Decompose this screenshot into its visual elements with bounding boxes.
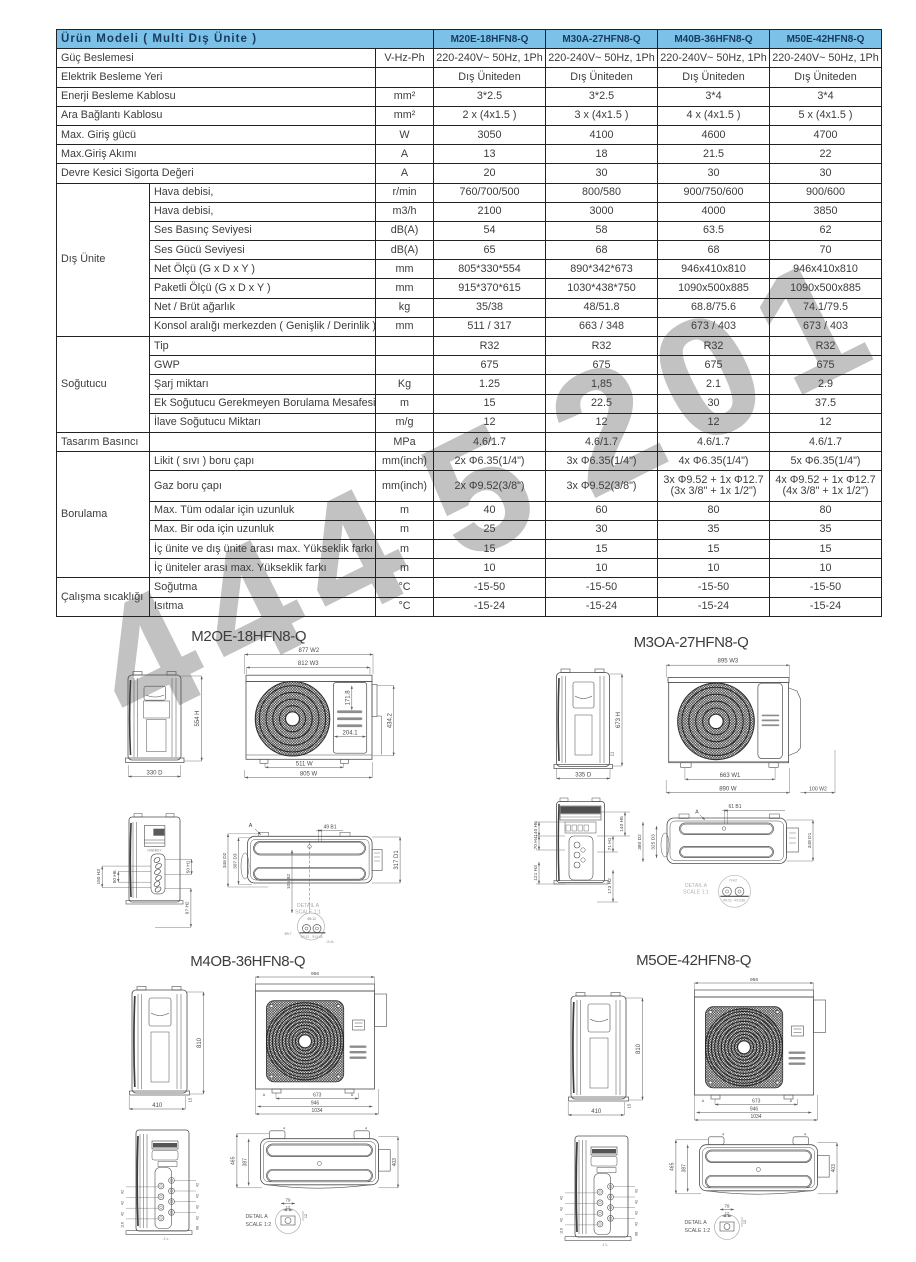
svg-text:330 D: 330 D bbox=[146, 771, 163, 777]
svg-text:11: 11 bbox=[610, 751, 616, 756]
svg-text:42: 42 bbox=[121, 1212, 125, 1216]
svg-text:877 W2: 877 W2 bbox=[299, 648, 320, 654]
svg-text:42: 42 bbox=[560, 1207, 564, 1211]
svg-text:946: 946 bbox=[750, 1107, 759, 1113]
svg-text:A: A bbox=[695, 810, 699, 816]
svg-text:1034: 1034 bbox=[750, 1114, 761, 1120]
svg-text:380 D2: 380 D2 bbox=[637, 834, 643, 850]
svg-text:SCALE 1:1: SCALE 1:1 bbox=[683, 890, 709, 896]
svg-text:15.4k: 15.4k bbox=[326, 940, 334, 944]
svg-text:387: 387 bbox=[243, 1158, 249, 1167]
svg-text:956: 956 bbox=[311, 971, 319, 977]
svg-text:HIGHRLY: HIGHRLY bbox=[148, 849, 163, 853]
svg-text:71 H1: 71 H1 bbox=[607, 837, 613, 850]
svg-text:554 H: 554 H bbox=[195, 710, 201, 726]
svg-text:4: 4 bbox=[722, 1133, 724, 1137]
svg-text:42: 42 bbox=[196, 1216, 200, 1220]
svg-text:DETAIL A: DETAIL A bbox=[297, 903, 320, 909]
svg-text:Φ9.7: Φ9.7 bbox=[285, 932, 292, 936]
svg-text:346 D2: 346 D2 bbox=[222, 852, 228, 868]
svg-text:325 D3: 325 D3 bbox=[650, 834, 656, 850]
svg-text:49 B1: 49 B1 bbox=[323, 825, 336, 831]
svg-text:M4OB-36HFN8-Q: M4OB-36HFN8-Q bbox=[190, 953, 305, 970]
svg-text:4: 4 bbox=[365, 1127, 367, 1131]
svg-text:J L: J L bbox=[602, 1242, 608, 1247]
svg-text:673: 673 bbox=[313, 1093, 322, 1099]
svg-text:204.1: 204.1 bbox=[343, 730, 359, 736]
svg-text:895 W3: 895 W3 bbox=[718, 659, 739, 665]
svg-text:A: A bbox=[351, 1093, 354, 1097]
svg-text:100 W2: 100 W2 bbox=[809, 786, 827, 792]
svg-text:DETAIL A: DETAIL A bbox=[246, 1214, 269, 1220]
svg-text:79: 79 bbox=[286, 1198, 291, 1203]
svg-text:946: 946 bbox=[311, 1101, 320, 1107]
svg-text:105 B2: 105 B2 bbox=[286, 874, 292, 890]
svg-text:A: A bbox=[249, 823, 253, 829]
svg-text:42: 42 bbox=[635, 1189, 639, 1193]
svg-text:434.2: 434.2 bbox=[388, 713, 394, 729]
svg-text:12: 12 bbox=[286, 1205, 291, 1210]
svg-text:A: A bbox=[263, 1093, 266, 1097]
svg-text:956: 956 bbox=[750, 977, 758, 983]
svg-text:116: 116 bbox=[121, 1222, 125, 1228]
svg-text:307 D3: 307 D3 bbox=[232, 853, 238, 869]
svg-text:317 D1: 317 D1 bbox=[394, 850, 400, 870]
svg-text:663 W1: 663 W1 bbox=[720, 773, 741, 779]
svg-text:Φ9.52 - Φ15.88: Φ9.52 - Φ15.88 bbox=[300, 935, 322, 939]
svg-text:810: 810 bbox=[197, 1037, 203, 1048]
svg-text:42: 42 bbox=[121, 1190, 125, 1194]
svg-text:M5OE-42HFN8-Q: M5OE-42HFN8-Q bbox=[636, 952, 751, 969]
svg-text:387: 387 bbox=[682, 1164, 688, 1173]
svg-text:A: A bbox=[702, 1099, 705, 1103]
svg-text:410: 410 bbox=[591, 1109, 602, 1115]
svg-text:79: 79 bbox=[725, 1204, 730, 1209]
svg-text:12: 12 bbox=[743, 1220, 747, 1224]
svg-text:50 H6: 50 H6 bbox=[112, 870, 118, 883]
svg-text:465: 465 bbox=[670, 1162, 676, 1171]
svg-text:42: 42 bbox=[635, 1222, 639, 1226]
svg-text:70 H4: 70 H4 bbox=[533, 836, 539, 849]
svg-text:150 H3: 150 H3 bbox=[96, 869, 102, 885]
svg-text:403: 403 bbox=[831, 1164, 837, 1173]
svg-text:97 H2: 97 H2 bbox=[185, 901, 191, 914]
svg-text:98: 98 bbox=[635, 1232, 639, 1236]
svg-text:805 W: 805 W bbox=[300, 772, 318, 778]
svg-text:42: 42 bbox=[196, 1194, 200, 1198]
svg-text:12: 12 bbox=[304, 1214, 308, 1218]
svg-text:61 B1: 61 B1 bbox=[728, 804, 741, 810]
svg-text:403: 403 bbox=[392, 1158, 398, 1167]
svg-text:M3OA-27HFN8-Q: M3OA-27HFN8-Q bbox=[634, 634, 749, 651]
svg-text:140 H5: 140 H5 bbox=[619, 816, 625, 832]
svg-text:12: 12 bbox=[725, 1211, 730, 1216]
svg-text:465: 465 bbox=[231, 1156, 237, 1165]
svg-text:DETAIL A: DETAIL A bbox=[685, 883, 708, 889]
svg-text:SCALE 1:2: SCALE 1:2 bbox=[685, 1228, 711, 1234]
svg-text:42: 42 bbox=[196, 1205, 200, 1209]
svg-text:673: 673 bbox=[752, 1099, 761, 1105]
svg-text:50 H1: 50 H1 bbox=[185, 860, 191, 873]
svg-text:Φ6.12: Φ6.12 bbox=[307, 917, 316, 921]
svg-text:74 A2: 74 A2 bbox=[729, 879, 737, 883]
svg-text:4: 4 bbox=[283, 1127, 285, 1131]
svg-text:171.8: 171.8 bbox=[346, 690, 352, 706]
svg-text:511 W: 511 W bbox=[296, 761, 313, 767]
svg-text:DETAIL A: DETAIL A bbox=[685, 1220, 708, 1226]
svg-text:Φ9.52 - Φ15.88: Φ9.52 - Φ15.88 bbox=[723, 899, 745, 903]
svg-text:335 D: 335 D bbox=[575, 773, 592, 779]
svg-text:810: 810 bbox=[636, 1043, 642, 1054]
svg-text:42: 42 bbox=[635, 1200, 639, 1204]
svg-text:410: 410 bbox=[152, 1103, 163, 1109]
svg-text:121 H3: 121 H3 bbox=[533, 865, 539, 881]
svg-text:1034: 1034 bbox=[311, 1108, 322, 1114]
svg-text:348 D1: 348 D1 bbox=[807, 832, 813, 848]
svg-text:M2OE-18HFN8-Q: M2OE-18HFN8-Q bbox=[191, 628, 306, 645]
svg-text:42: 42 bbox=[560, 1218, 564, 1222]
svg-text:140 H6: 140 H6 bbox=[533, 821, 539, 837]
svg-text:673 H: 673 H bbox=[616, 712, 622, 728]
svg-text:A: A bbox=[790, 1099, 793, 1103]
svg-text:15: 15 bbox=[188, 1097, 193, 1102]
svg-text:42: 42 bbox=[560, 1196, 564, 1200]
svg-text:4: 4 bbox=[804, 1133, 806, 1137]
svg-text:SCALE 1:2: SCALE 1:2 bbox=[246, 1222, 272, 1228]
svg-text:42: 42 bbox=[196, 1183, 200, 1187]
svg-text:173 H2: 173 H2 bbox=[607, 878, 613, 894]
svg-text:116: 116 bbox=[560, 1228, 564, 1234]
svg-text:42: 42 bbox=[121, 1201, 125, 1205]
svg-text:890 W: 890 W bbox=[719, 786, 737, 792]
svg-text:812 W3: 812 W3 bbox=[298, 661, 319, 667]
svg-text:J L: J L bbox=[163, 1236, 169, 1241]
svg-text:15: 15 bbox=[627, 1103, 632, 1108]
svg-text:42: 42 bbox=[635, 1211, 639, 1215]
svg-text:98: 98 bbox=[196, 1226, 200, 1230]
